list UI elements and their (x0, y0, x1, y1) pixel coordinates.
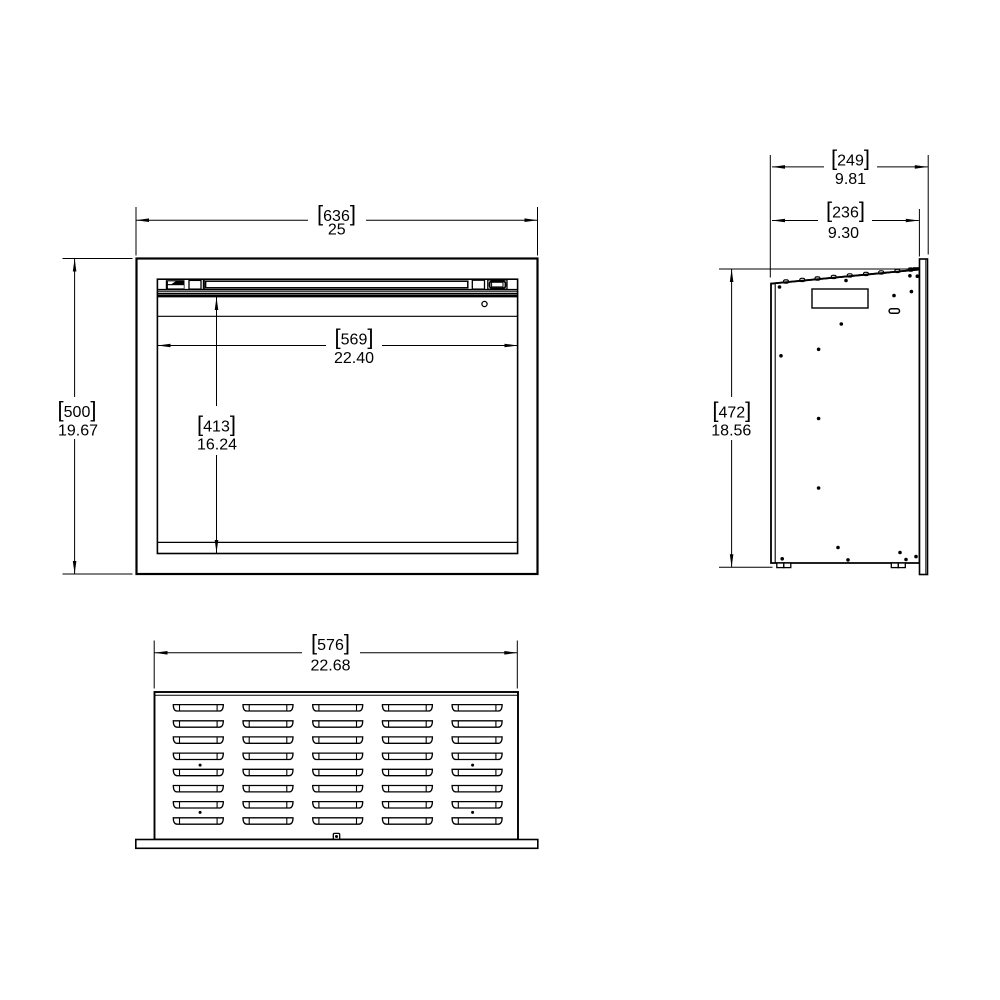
svg-text:19.67: 19.67 (58, 423, 98, 440)
svg-text:9.81: 9.81 (835, 171, 866, 188)
svg-text:22.68: 22.68 (310, 658, 350, 675)
svg-text:9.30: 9.30 (828, 225, 859, 242)
svg-text:25: 25 (328, 222, 346, 239)
svg-text:16.24: 16.24 (197, 437, 237, 454)
svg-text:18.56: 18.56 (711, 423, 751, 440)
svg-text:22.40: 22.40 (334, 350, 374, 367)
